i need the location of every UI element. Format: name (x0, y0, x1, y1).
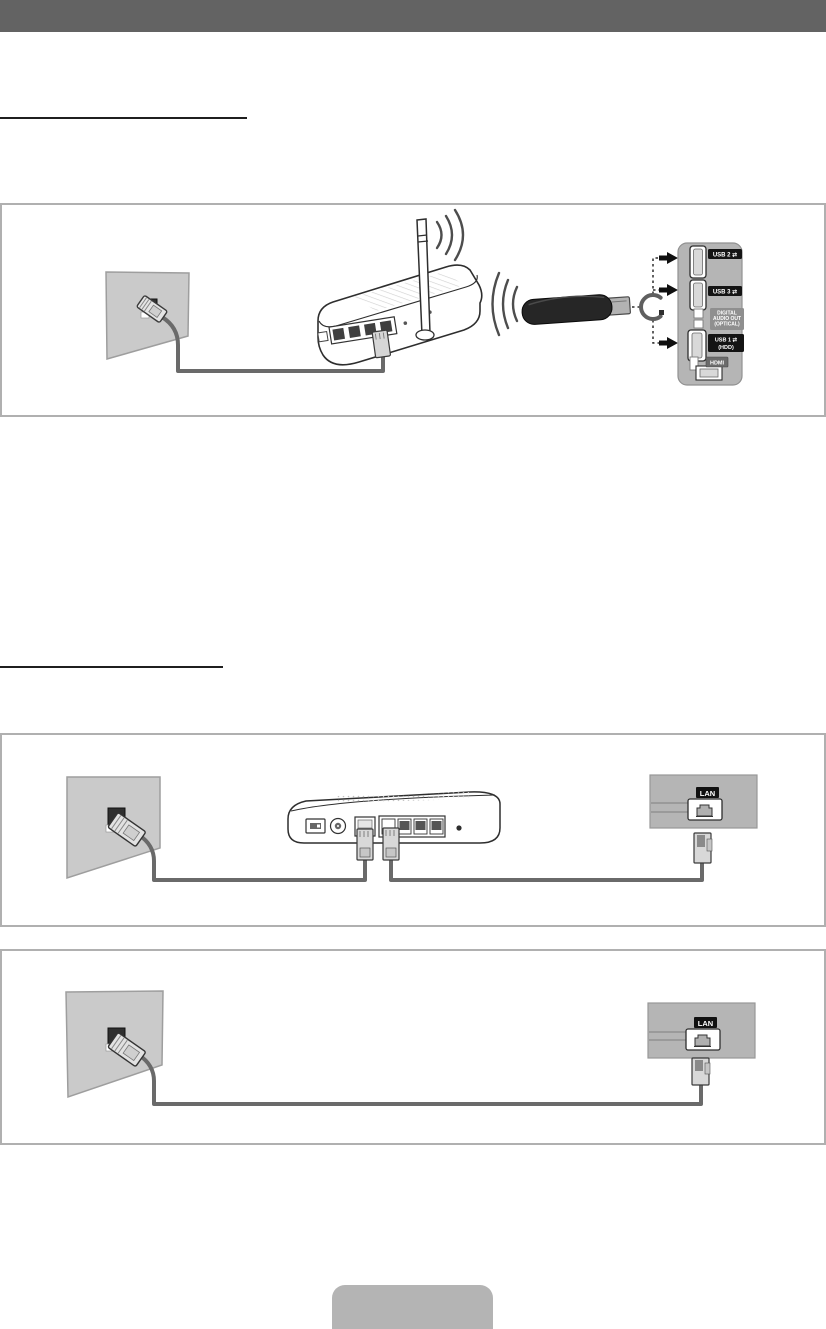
svg-text:HDMI: HDMI (710, 361, 725, 367)
rj45-plug-icon (357, 829, 373, 860)
usb1-hdd-port-label: USB 1 ⇄ (HDD) (708, 334, 744, 352)
router-cable-connector (372, 330, 390, 358)
router-wired-connection-diagram: LAN (2, 735, 824, 925)
svg-text:USB 3 ⇄: USB 3 ⇄ (713, 288, 737, 296)
lan-port-slot (686, 1029, 720, 1050)
wireless-router-illustration (317, 219, 482, 365)
section-heading-rule-1 (0, 117, 247, 119)
wireless-connection-diagram: USB 2 ⇄ USB 3 ⇄ DIGITAL AUDIO OUT (OPTIC… (2, 205, 824, 415)
svg-text:LAN: LAN (700, 789, 715, 798)
panel-small-slot (694, 309, 703, 318)
rj45-plug-icon (692, 1058, 710, 1085)
reset-button-dot (456, 825, 461, 830)
tv-side-panel: USB 2 ⇄ USB 3 ⇄ DIGITAL AUDIO OUT (OPTIC… (678, 243, 744, 385)
wifi-waves-icon (493, 273, 518, 335)
page-header-bar (0, 0, 826, 32)
wireless-diagram-box: USB 2 ⇄ USB 3 ⇄ DIGITAL AUDIO OUT (OPTIC… (0, 203, 826, 417)
lan-port-label: LAN (694, 1017, 717, 1028)
tv-lan-panel: LAN (648, 1003, 755, 1058)
manual-page: USB 2 ⇄ USB 3 ⇄ DIGITAL AUDIO OUT (OPTIC… (0, 0, 826, 1329)
svg-text:LAN: LAN (698, 1019, 713, 1028)
rj45-plug-icon (383, 828, 399, 860)
rotate-arrow-icon (641, 295, 664, 319)
power-switch (306, 819, 325, 833)
ethernet-cable (139, 1055, 701, 1104)
usb-port-slot (688, 330, 706, 361)
ethernet-cable (391, 857, 702, 880)
rj45-plug-icon (694, 833, 712, 863)
power-jack (331, 819, 346, 834)
direct-wired-connection-diagram: LAN (2, 951, 824, 1143)
usb2-port-label: USB 2 ⇄ (708, 249, 742, 259)
lan-port-slot (688, 799, 722, 820)
svg-text:USB 1 ⇄: USB 1 ⇄ (715, 336, 738, 344)
panel-small-slot (694, 320, 703, 328)
hdmi-port-label: HDMI (706, 357, 728, 367)
svg-text:USB 2 ⇄: USB 2 ⇄ (713, 251, 737, 259)
svg-text:(HDD): (HDD) (718, 345, 734, 351)
digital-audio-out-label: DIGITAL AUDIO OUT (OPTICAL) (710, 308, 744, 330)
section-heading-rule-2 (0, 666, 223, 668)
footer-nav-button[interactable] (332, 1285, 493, 1329)
usb3-port-label: USB 3 ⇄ (708, 286, 742, 296)
wifi-waves-icon (437, 210, 463, 260)
dotted-guide-line (632, 258, 659, 343)
usb-port-slot (690, 246, 706, 278)
wireless-lan-adapter-illustration (521, 293, 630, 326)
modem-router-illustration (288, 792, 500, 860)
tv-lan-panel: LAN (650, 775, 757, 828)
arrow-icon (659, 252, 678, 349)
usb-port-slot (690, 280, 706, 310)
lan-port-label: LAN (696, 787, 719, 798)
svg-text:(OPTICAL): (OPTICAL) (714, 322, 740, 328)
hdmi-port-slot (696, 366, 722, 380)
wired-router-diagram-box: LAN (0, 733, 826, 927)
wired-direct-diagram-box: LAN (0, 949, 826, 1145)
